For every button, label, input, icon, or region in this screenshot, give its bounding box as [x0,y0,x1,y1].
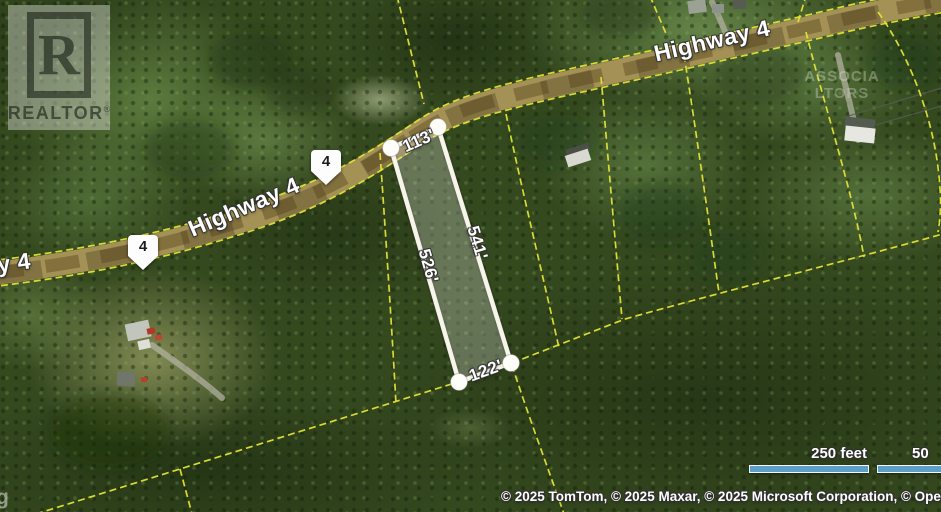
realtor-r-icon: R [27,12,91,98]
route-shield-west: 4 [128,235,158,270]
clipped-logo-fragment: g [0,486,9,510]
map-canvas: R REALTOR® ASSOCIA LTORS Highway 4 Highw… [0,0,941,512]
realtor-logo: R REALTOR® [8,5,110,130]
association-watermark: ASSOCIA LTORS [782,68,902,102]
scale-bar-primary [749,465,869,473]
map-attribution: © 2025 TomTom, © 2025 Maxar, © 2025 Micr… [501,489,941,504]
registered-trademark-symbol: ® [104,104,111,114]
realtor-wordmark: REALTOR® [8,103,110,124]
realtor-r-letter: R [38,26,80,84]
route-shield-east: 4 [311,150,341,185]
scale-label-feet: 250 feet [749,445,867,462]
parcel-boundary [391,127,511,382]
scale-label-secondary: 50 [912,445,929,462]
highway-label-partial: y 4 [0,247,32,278]
scale-bar-secondary [877,465,941,473]
